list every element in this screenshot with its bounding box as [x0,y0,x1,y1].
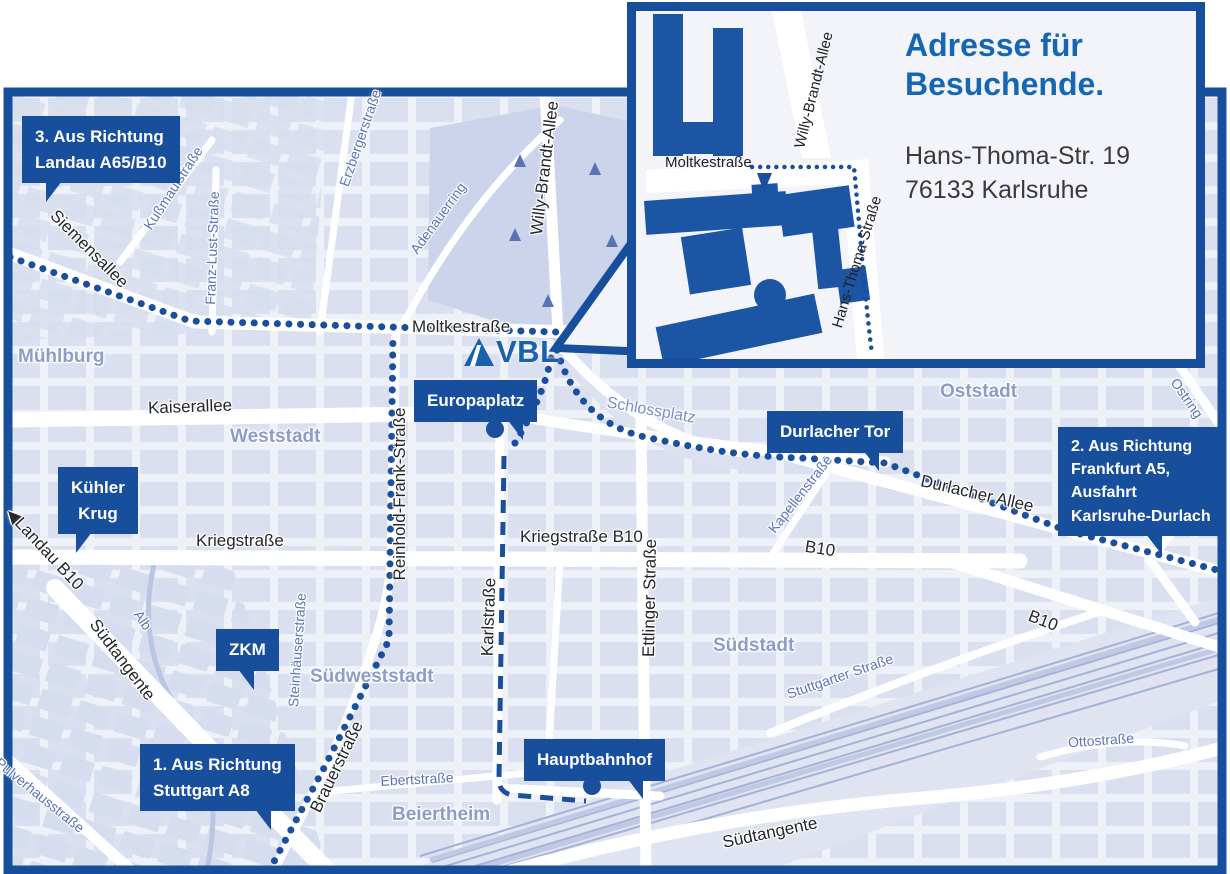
callout-line: 1. Aus Richtung [153,752,282,778]
callout-route-frankfurt: 2. Aus Richtung Frankfurt A5, Ausfahrt K… [1058,427,1224,536]
inset-title: Adresse für Besuchende. [905,26,1190,104]
callout-hauptbahnhof: Hauptbahnhof [524,739,665,781]
callout-pointer [46,181,62,202]
callout-route-stuttgart: 1. Aus Richtung Stuttgart A8 [140,744,295,811]
callout-line: Frankfurt A5, [1071,458,1211,481]
inset-address-line2: 76133 Karlsruhe [905,176,1088,205]
callout-line: Kühler [71,475,125,501]
callout-line: 3. Aus Richtung [35,124,167,150]
callout-kuehler-krug: Kühler Krug [58,467,138,534]
callout-route-landau: 3. Aus Richtung Landau A65/B10 [22,116,180,183]
callout-pointer [627,778,643,799]
callout-line: 2. Aus Richtung [1071,435,1211,458]
callout-zkm: ZKM [216,629,279,671]
callout-line: Hauptbahnhof [537,747,652,773]
callout-line: ZKM [229,637,266,663]
callout-durlacher-tor: Durlacher Tor [767,411,903,453]
callout-pointer [863,450,879,471]
inset-street-label-moltkestrasse: Moltkestraße [665,154,752,171]
callout-line: Ausfahrt [1071,481,1211,504]
callout-line: Karlsruhe-Durlach [1071,505,1211,528]
callout-pointer [1146,534,1162,555]
vbl-directions-map: Siemensallee Moltkestraße Willy-Brandt-A… [0,0,1230,874]
callout-line: Krug [71,501,125,527]
callout-pointer [238,669,254,690]
inset-address-line1: Hans-Thoma-Str. 19 [905,142,1130,171]
callout-pointer [507,419,523,440]
callout-line: Durlacher Tor [780,419,890,445]
callout-line: Landau A65/B10 [35,150,167,176]
callout-line: Europaplatz [427,388,524,414]
callout-pointer [76,532,92,553]
callout-line: Stuttgart A8 [153,778,282,804]
vbl-logo-text: VBL [496,334,560,370]
callout-europaplatz: Europaplatz [414,380,537,422]
callout-pointer [255,809,271,830]
vbl-triangle-icon [462,337,496,367]
vbl-logo: VBL [462,334,560,370]
